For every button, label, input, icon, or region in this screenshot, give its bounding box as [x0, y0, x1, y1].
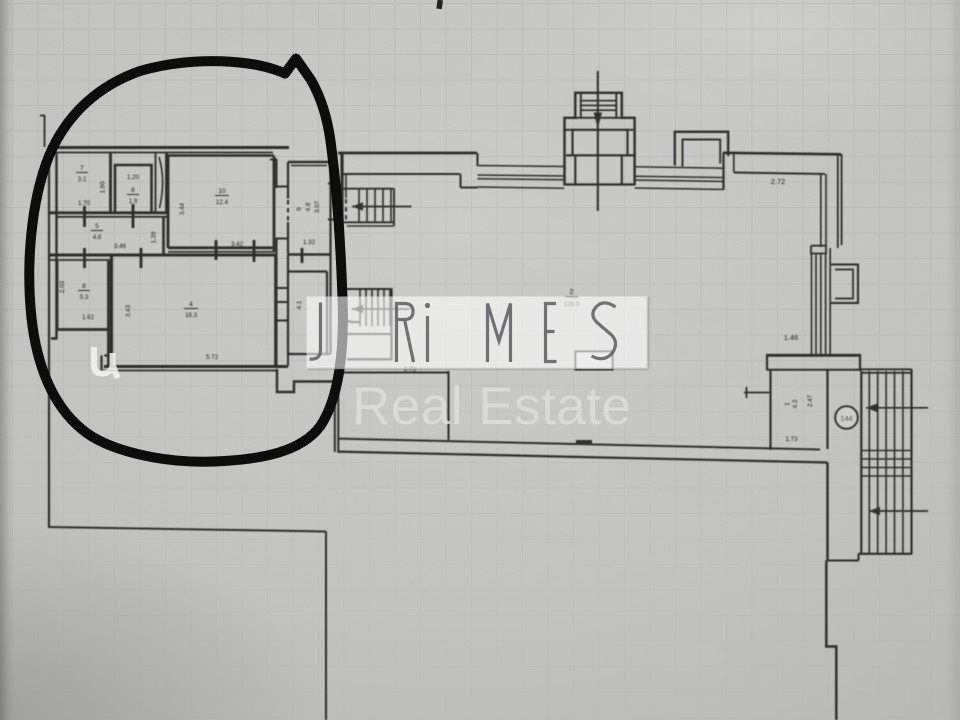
svg-text:1.39: 1.39	[151, 231, 158, 244]
svg-text:1.20: 1.20	[127, 174, 140, 181]
svg-text:3.2: 3.2	[78, 176, 87, 183]
svg-text:Real Estate: Real Estate	[352, 377, 631, 436]
svg-text:7: 7	[80, 165, 84, 172]
svg-text:2.47: 2.47	[807, 394, 814, 407]
svg-text:5.3: 5.3	[80, 294, 89, 301]
svg-text:1: 1	[784, 402, 791, 406]
svg-text:2.03: 2.03	[59, 280, 66, 293]
svg-text:5.72: 5.72	[206, 354, 219, 361]
svg-text:3.42: 3.42	[231, 241, 244, 248]
svg-text:4.3: 4.3	[792, 399, 799, 408]
svg-text:1.62: 1.62	[82, 314, 95, 321]
svg-text:144: 144	[840, 414, 852, 423]
svg-text:3.43: 3.43	[125, 304, 132, 317]
svg-text:3.07: 3.07	[314, 200, 321, 213]
svg-text:2.72: 2.72	[771, 177, 785, 186]
svg-text:1.32: 1.32	[303, 239, 316, 246]
svg-text:1.90: 1.90	[100, 181, 107, 194]
svg-text:3.46: 3.46	[114, 243, 127, 250]
svg-text:2: 2	[569, 287, 573, 296]
svg-text:12.4: 12.4	[216, 199, 229, 206]
svg-text:9: 9	[296, 207, 303, 211]
svg-text:3.44: 3.44	[179, 202, 186, 215]
svg-text:1.70: 1.70	[78, 200, 91, 207]
svg-text:18.3: 18.3	[185, 312, 198, 319]
svg-text:1.9: 1.9	[129, 198, 138, 205]
svg-text:6: 6	[131, 187, 135, 194]
svg-text:8: 8	[82, 283, 86, 290]
svg-text:1.46: 1.46	[784, 333, 798, 342]
svg-text:5: 5	[95, 223, 99, 230]
svg-text:4.8: 4.8	[93, 234, 102, 241]
svg-text:4.1: 4.1	[296, 300, 303, 309]
svg-text:4: 4	[189, 301, 193, 308]
svg-text:10: 10	[218, 188, 226, 195]
svg-text:4.8: 4.8	[305, 202, 312, 211]
svg-text:1.73: 1.73	[785, 436, 798, 443]
